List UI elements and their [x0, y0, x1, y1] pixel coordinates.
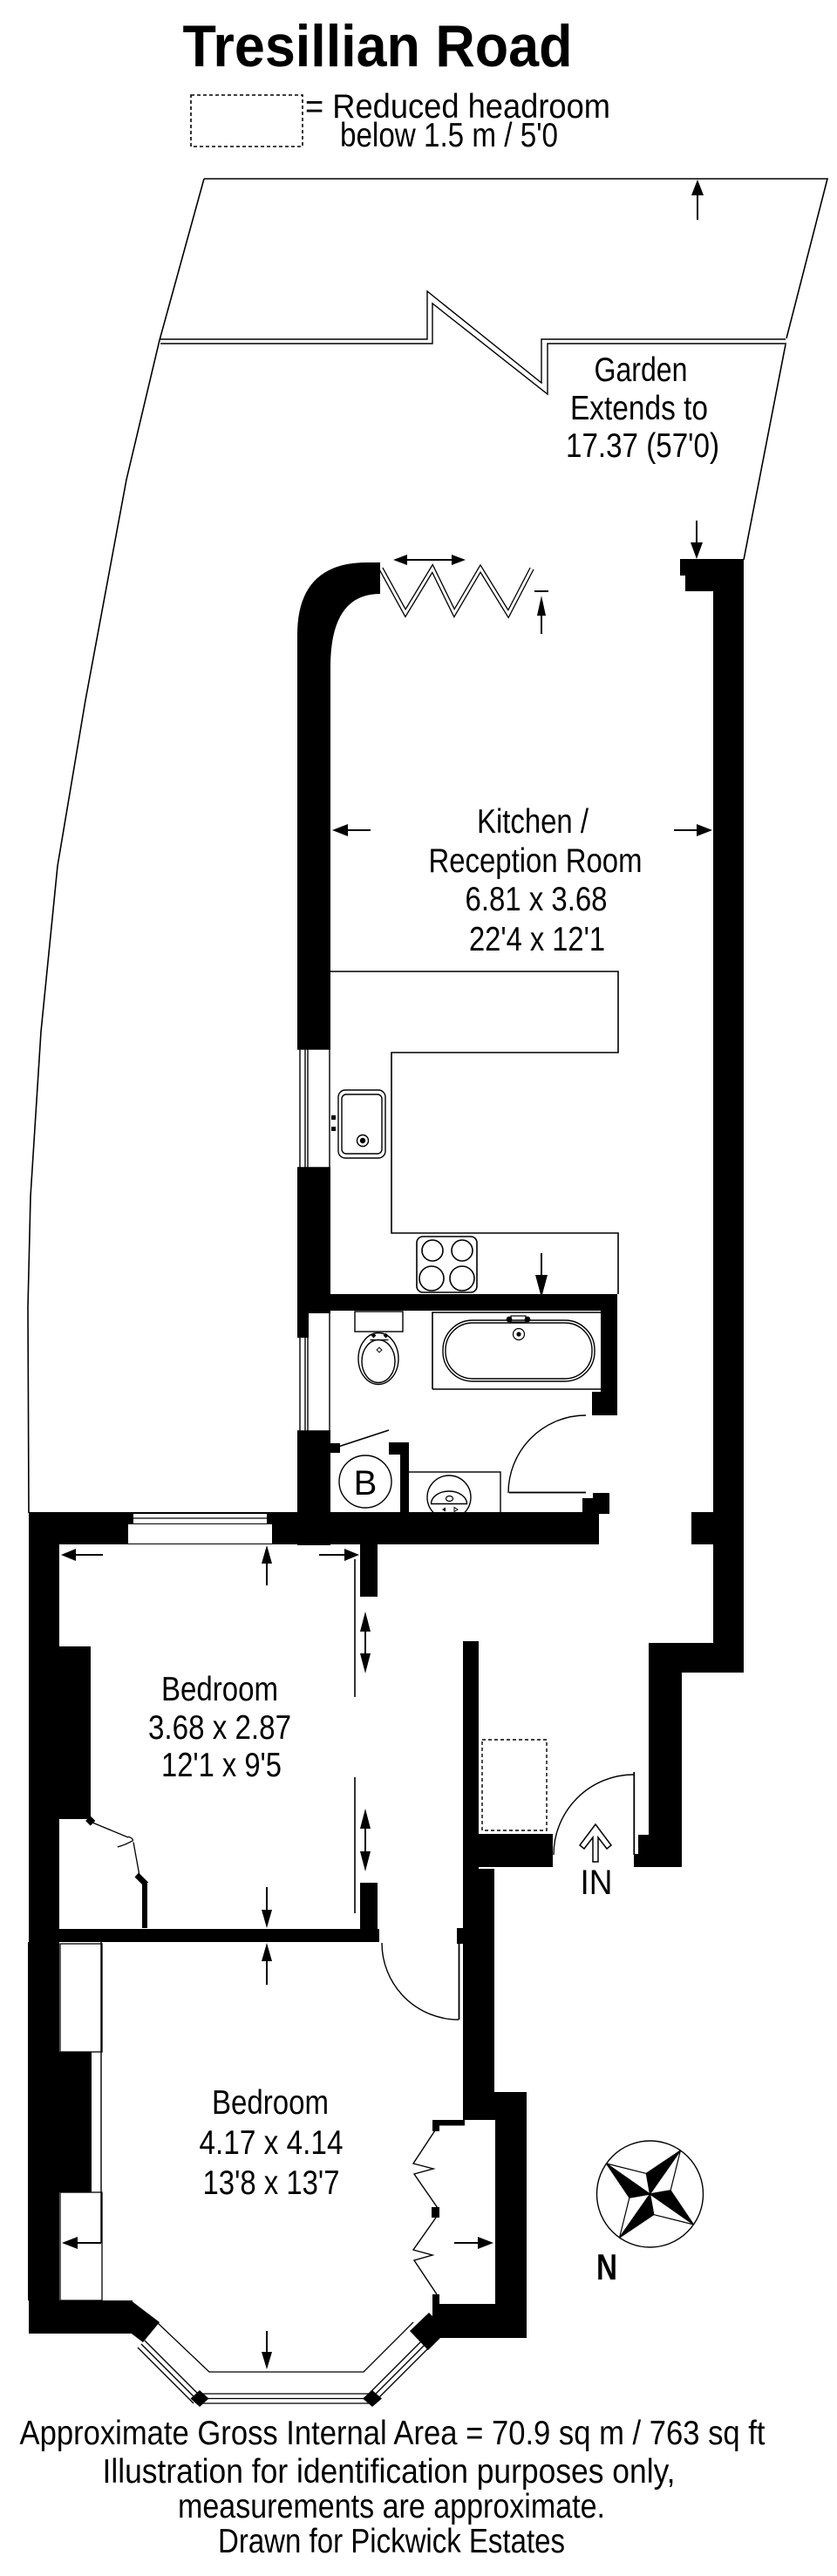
svg-text:Approximate Gross Internal Are: Approximate Gross Internal Area = 70.9 s… [20, 2415, 766, 2452]
svg-text:12'1 x 9'5: 12'1 x 9'5 [161, 1747, 282, 1784]
svg-text:Reception Room: Reception Room [429, 842, 643, 880]
svg-text:17.37 (57'0): 17.37 (57'0) [566, 427, 719, 465]
svg-text:Bedroom: Bedroom [212, 2084, 329, 2122]
svg-text:measurements are approximate.: measurements are approximate. [178, 2488, 605, 2525]
svg-text:N: N [596, 2246, 617, 2287]
svg-text:4.17 x 4.14: 4.17 x 4.14 [200, 2124, 344, 2162]
svg-text:Extends to: Extends to [570, 390, 708, 427]
svg-text:Drawn for Pickwick Estates: Drawn for Pickwick Estates [218, 2523, 565, 2560]
svg-text:Kitchen /: Kitchen / [477, 803, 589, 841]
svg-text:Illustration for identificatio: Illustration for identification purposes… [103, 2453, 676, 2491]
svg-text:3.68 x 2.87: 3.68 x 2.87 [148, 1709, 291, 1747]
svg-text:22'4 x 12'1: 22'4 x 12'1 [469, 921, 605, 958]
svg-text:6.81 x 3.68: 6.81 x 3.68 [466, 881, 608, 918]
svg-text:Tresillian Road: Tresillian Road [183, 13, 573, 79]
svg-text:Bedroom: Bedroom [161, 1671, 278, 1708]
svg-text:13'8 x 13'7: 13'8 x 13'7 [203, 2164, 340, 2202]
svg-text:B: B [354, 1464, 378, 1503]
svg-text:below 1.5 m / 5'0: below 1.5 m / 5'0 [340, 117, 558, 154]
svg-text:Garden: Garden [595, 351, 688, 389]
svg-text:IN: IN [581, 1864, 613, 1902]
